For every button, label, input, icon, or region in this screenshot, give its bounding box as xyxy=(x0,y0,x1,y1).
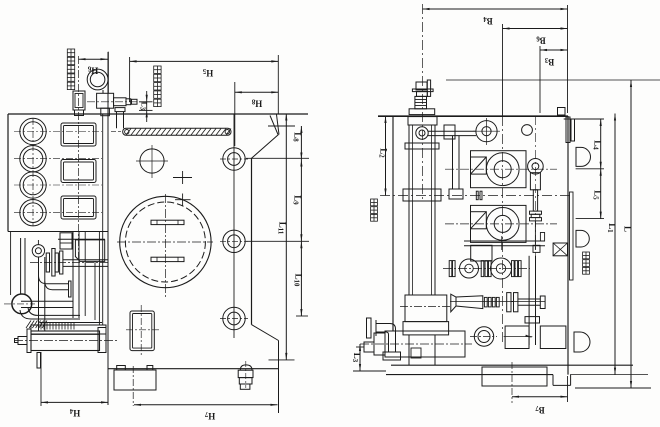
svg-text:L: L xyxy=(623,226,633,232)
